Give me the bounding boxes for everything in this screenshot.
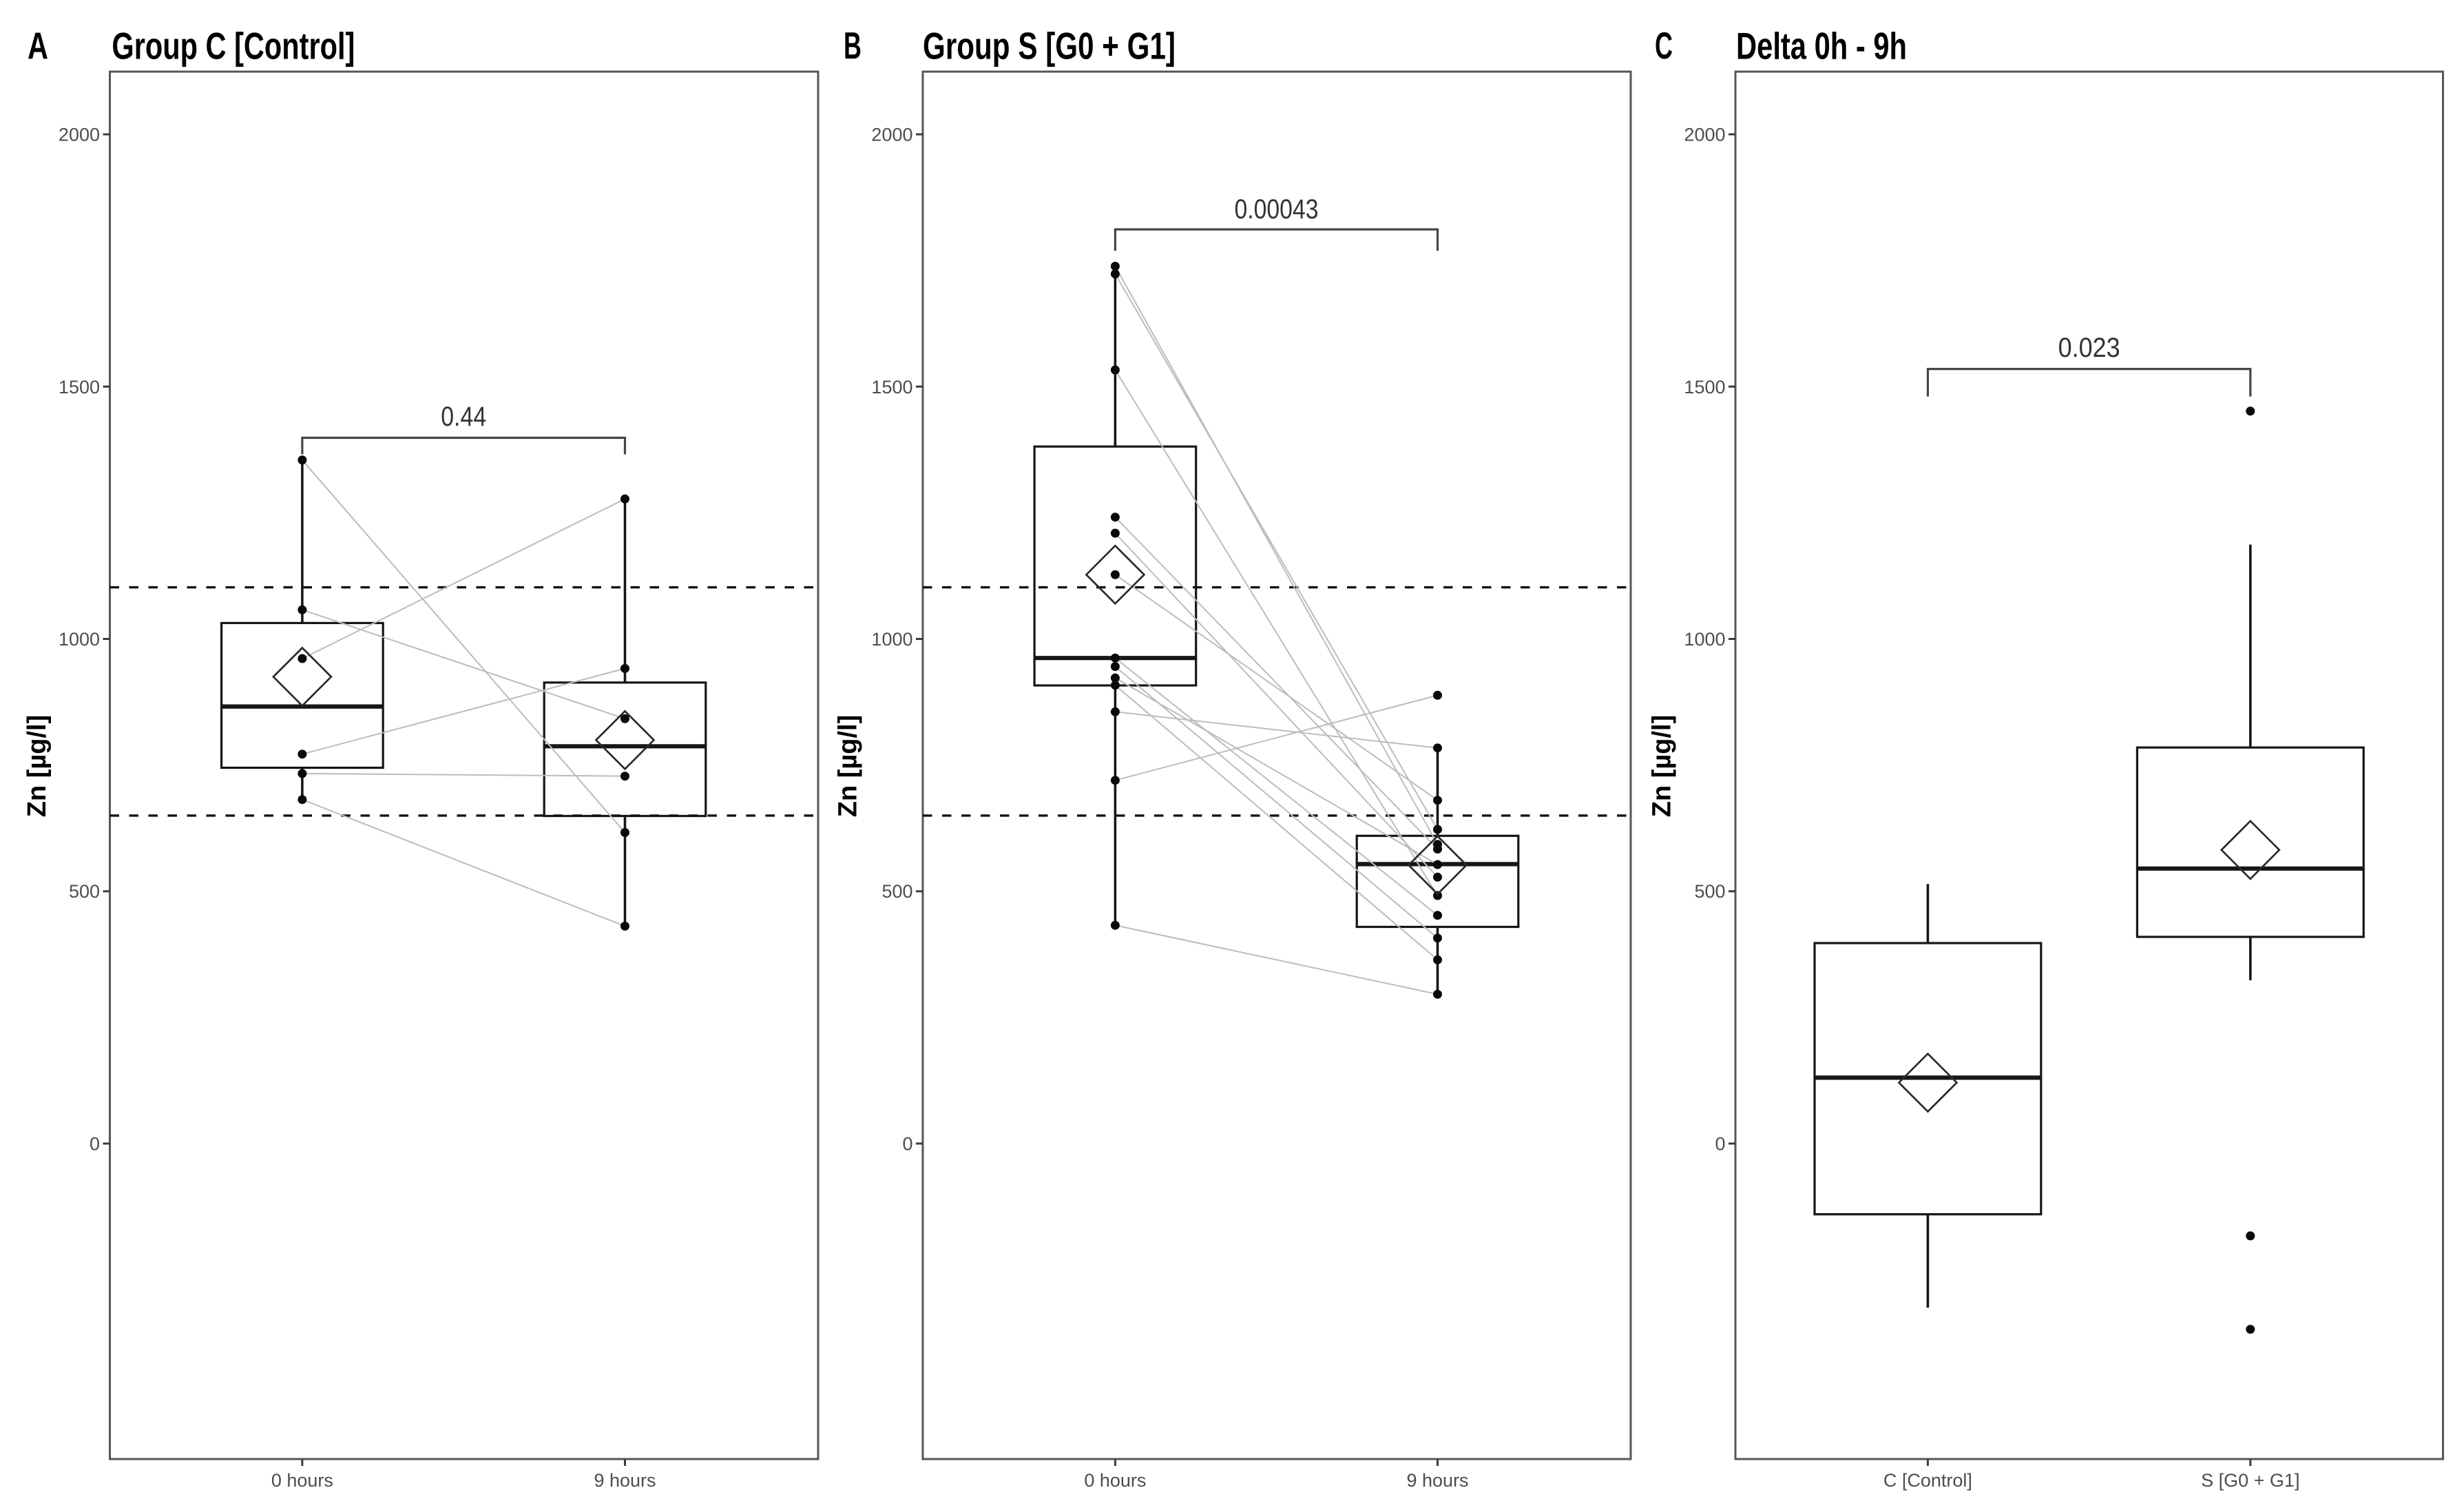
svg-text:A: A xyxy=(28,24,48,67)
svg-text:0.44: 0.44 xyxy=(441,402,486,432)
svg-text:500: 500 xyxy=(881,881,912,902)
svg-text:Zn [µg/l]: Zn [µg/l] xyxy=(1648,715,1677,818)
svg-text:Zn [µg/l]: Zn [µg/l] xyxy=(23,715,52,818)
svg-text:1000: 1000 xyxy=(871,629,912,650)
svg-text:9 hours: 9 hours xyxy=(594,1470,656,1491)
svg-text:2000: 2000 xyxy=(59,125,100,145)
svg-text:0: 0 xyxy=(90,1134,100,1155)
svg-text:1500: 1500 xyxy=(871,377,912,397)
svg-text:0.00043: 0.00043 xyxy=(1235,194,1319,225)
svg-text:Group C [Control]: Group C [Control] xyxy=(112,25,355,68)
svg-text:2000: 2000 xyxy=(871,125,912,145)
svg-text:C: C xyxy=(1655,24,1673,67)
svg-text:0 hours: 0 hours xyxy=(1084,1470,1146,1491)
svg-text:9 hours: 9 hours xyxy=(1406,1470,1468,1491)
svg-text:0: 0 xyxy=(1715,1134,1725,1155)
svg-text:1500: 1500 xyxy=(59,377,100,397)
svg-text:Delta 0h - 9h: Delta 0h - 9h xyxy=(1736,25,1907,68)
svg-text:1500: 1500 xyxy=(1684,377,1725,397)
svg-text:Group S [G0 + G1]: Group S [G0 + G1] xyxy=(923,25,1176,68)
svg-text:B: B xyxy=(844,24,862,67)
svg-text:1000: 1000 xyxy=(1684,629,1725,650)
svg-text:C [Control]: C [Control] xyxy=(1883,1470,1972,1491)
svg-text:500: 500 xyxy=(69,881,100,902)
svg-text:500: 500 xyxy=(1694,881,1725,902)
svg-text:S [G0 + G1]: S [G0 + G1] xyxy=(2201,1470,2299,1491)
svg-text:2000: 2000 xyxy=(1684,125,1725,145)
svg-text:1000: 1000 xyxy=(59,629,100,650)
svg-text:0.023: 0.023 xyxy=(2058,333,2120,363)
svg-text:0: 0 xyxy=(902,1134,912,1155)
svg-text:Zn [µg/l]: Zn [µg/l] xyxy=(834,715,863,818)
svg-text:0 hours: 0 hours xyxy=(271,1470,333,1491)
